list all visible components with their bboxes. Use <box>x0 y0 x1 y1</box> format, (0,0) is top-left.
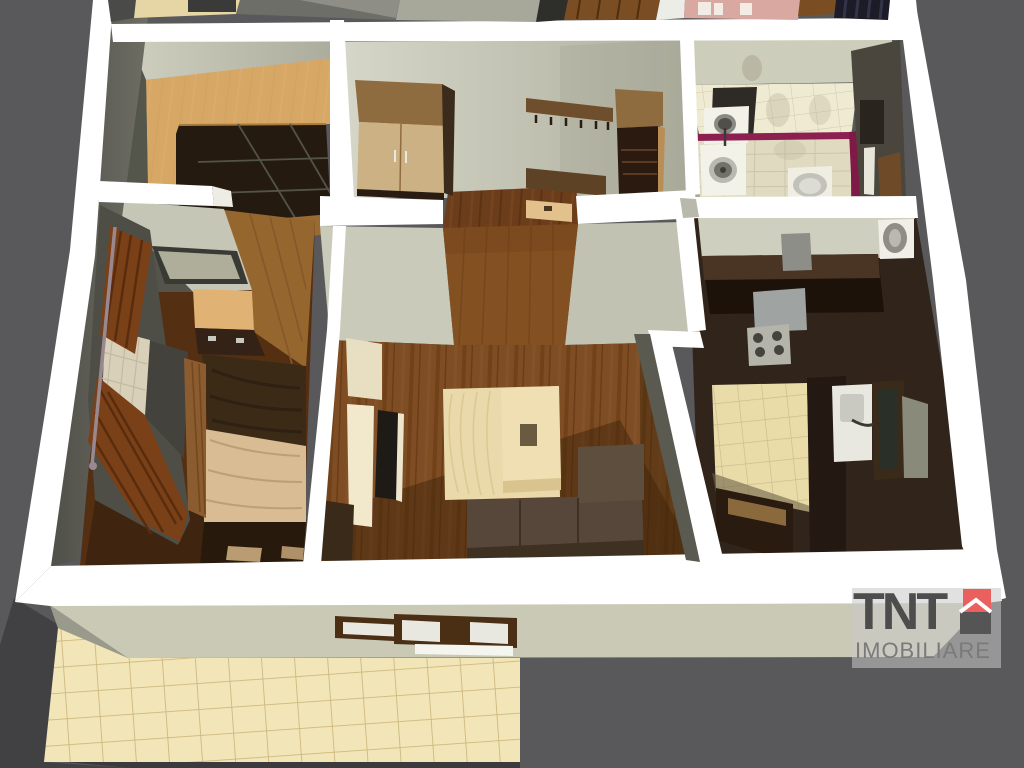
svg-text:TNT: TNT <box>853 583 948 641</box>
svg-text:IMOBILIARE: IMOBILIARE <box>855 638 991 663</box>
